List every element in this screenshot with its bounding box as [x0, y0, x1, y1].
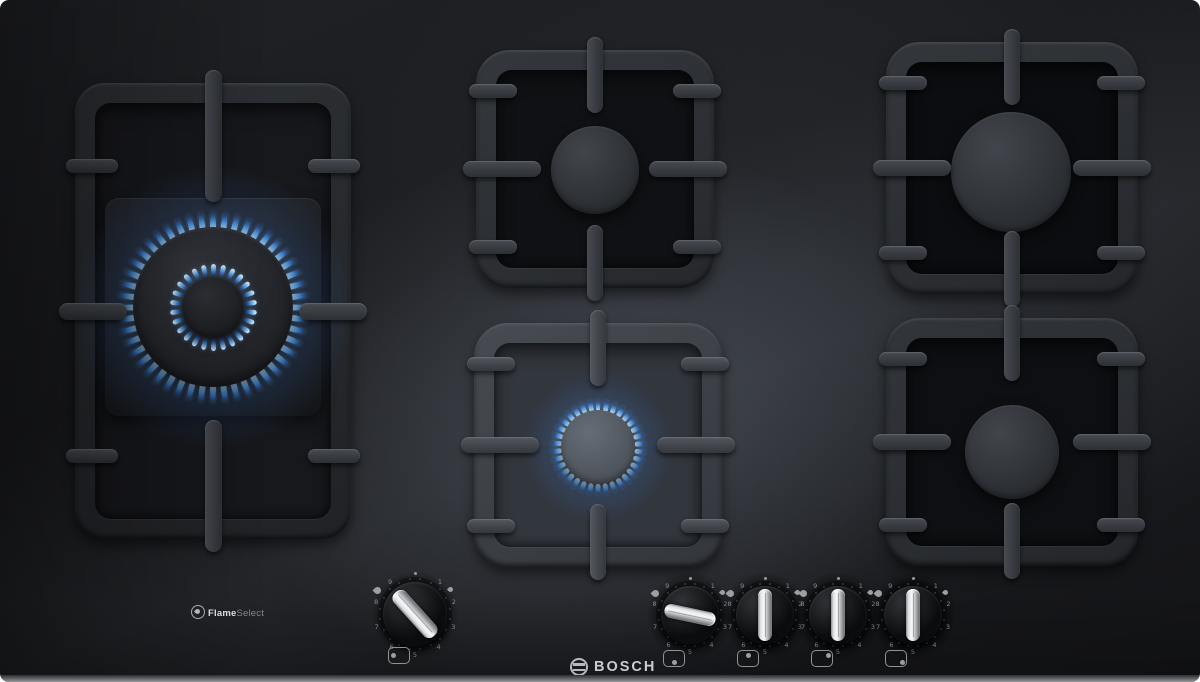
dial-number: 1	[856, 583, 866, 590]
support-foot	[681, 357, 729, 371]
dial-tick	[809, 600, 811, 602]
dial-tick	[851, 642, 853, 644]
dial-number: 4	[929, 642, 939, 649]
dial-tick	[398, 582, 400, 584]
dial-tick	[815, 636, 817, 638]
bosch-armature-icon	[570, 658, 588, 676]
dial-tick	[940, 600, 942, 602]
support-prong-top	[1004, 305, 1020, 381]
support-foot	[1097, 76, 1145, 90]
dial-number: 9	[385, 579, 395, 586]
burner-position-icon-left-center	[388, 647, 410, 664]
knob-handle	[831, 589, 845, 641]
dial-number: 7	[372, 624, 382, 631]
burner-position-icon-top-right	[811, 650, 833, 667]
dial-off-mark	[689, 577, 692, 580]
max-flame-icon	[652, 590, 659, 597]
dial-tick	[430, 582, 432, 584]
dial-tick	[711, 636, 713, 638]
dial-tick	[419, 578, 421, 580]
burner-cap-front-right	[965, 405, 1059, 499]
min-flame-icon	[448, 587, 453, 592]
glass-front-bevel	[0, 675, 1200, 682]
support-prong-right	[649, 161, 727, 177]
dial-tick	[742, 592, 744, 594]
dial-tick	[832, 583, 834, 585]
burner-position-icon-bottom-right	[885, 650, 907, 667]
dial-tick	[419, 648, 421, 650]
dial-number: 7	[725, 624, 735, 631]
dial-tick	[823, 586, 825, 588]
dial-number: 4	[854, 642, 864, 649]
dial-tick	[694, 583, 696, 585]
station-back-right	[886, 42, 1138, 294]
dial-tick	[926, 586, 928, 588]
dial-number: 8	[873, 601, 883, 608]
dial-tick	[832, 645, 834, 647]
dial-number: 1	[435, 579, 445, 586]
max-flame-icon	[875, 590, 882, 597]
dial-number: 6	[664, 642, 674, 649]
dial-tick	[917, 583, 919, 585]
support-prong-top	[590, 310, 606, 386]
dial-tick	[884, 600, 886, 602]
dial-tick	[917, 645, 919, 647]
dial-tick	[809, 628, 811, 630]
flameselect-light-text: Select	[236, 608, 264, 619]
dial-tick	[907, 583, 909, 585]
dial-tick	[851, 586, 853, 588]
dial-number: 7	[873, 624, 883, 631]
dial-off-mark	[912, 577, 915, 580]
dial-tick	[733, 609, 735, 611]
support-foot	[308, 159, 360, 173]
dial-tick	[842, 583, 844, 585]
dial-tick	[379, 608, 381, 610]
dial-tick	[658, 619, 660, 621]
dial-off-mark	[837, 577, 840, 580]
dial-tick	[778, 642, 780, 644]
dial-number: 8	[650, 601, 660, 608]
dial-number: 1	[708, 583, 718, 590]
dial-tick	[884, 628, 886, 630]
station-wok-left	[75, 83, 351, 539]
support-prong-bottom	[587, 225, 603, 301]
max-flame-icon	[374, 587, 381, 594]
product-photo-stage: FlameSelect BOSCH 1234567891234567891234…	[0, 0, 1200, 682]
dial-number: 9	[810, 583, 820, 590]
dial-tick	[711, 592, 713, 594]
dial-number: 4	[434, 644, 444, 651]
dial-tick	[409, 578, 411, 580]
gas-hob-glass-surface: FlameSelect BOSCH 1234567891234567891234…	[0, 0, 1200, 682]
dial-number: 6	[887, 642, 897, 649]
support-foot	[1097, 518, 1145, 532]
dial-tick	[703, 586, 705, 588]
dial-tick	[934, 636, 936, 638]
support-foot	[879, 518, 927, 532]
dial-tick	[943, 609, 945, 611]
dial-tick	[661, 600, 663, 602]
support-prong-bottom	[1004, 503, 1020, 579]
dial-number: 5	[833, 649, 843, 656]
min-flame-icon	[943, 590, 948, 595]
dial-tick	[675, 642, 677, 644]
burner-cap-wok	[182, 276, 244, 338]
support-foot	[879, 352, 927, 366]
dial-number: 4	[706, 642, 716, 649]
burner-cap-back-center	[551, 126, 639, 214]
flame-tongue	[211, 264, 216, 277]
dial-tick	[661, 628, 663, 630]
support-foot	[469, 240, 517, 254]
dial-tick	[389, 588, 391, 590]
flame-tongue	[596, 484, 601, 495]
flame-tongue	[634, 440, 645, 445]
dial-tick	[383, 629, 385, 631]
dial-tick	[823, 642, 825, 644]
knob-dial	[884, 586, 942, 644]
dial-number: 2	[449, 599, 459, 606]
left-wok-burner-knob[interactable]: 123456789	[367, 566, 463, 662]
dial-tick	[445, 597, 447, 599]
knob-handle	[663, 603, 717, 628]
dial-number: 2	[943, 601, 953, 608]
dial-tick	[786, 636, 788, 638]
dial-tick	[449, 618, 451, 620]
dial-tick	[881, 619, 883, 621]
dial-tick	[943, 619, 945, 621]
support-foot	[681, 519, 729, 533]
support-prong-bottom	[1004, 231, 1020, 307]
dial-off-mark	[414, 572, 417, 575]
knob-dial	[736, 586, 794, 644]
dial-tick	[658, 609, 660, 611]
dial-number: 1	[931, 583, 941, 590]
dial-tick	[742, 636, 744, 638]
knob-dial	[383, 582, 447, 646]
dial-tick	[694, 645, 696, 647]
dial-number: 3	[943, 624, 953, 631]
support-foot	[879, 76, 927, 90]
dial-tick	[806, 609, 808, 611]
dial-tick	[398, 644, 400, 646]
dial-tick	[859, 592, 861, 594]
knob-handle	[758, 589, 772, 641]
support-foot	[469, 84, 517, 98]
flame-tongue	[211, 338, 216, 351]
dial-tick	[736, 600, 738, 602]
dial-tick	[439, 638, 441, 640]
flameselect-badge: FlameSelect	[191, 603, 264, 621]
dial-tick	[759, 645, 761, 647]
dial-number: 9	[662, 583, 672, 590]
dial-number: 5	[760, 649, 770, 656]
dial-tick	[786, 592, 788, 594]
dial-tick	[898, 586, 900, 588]
support-prong-bottom	[205, 420, 222, 552]
dial-number: 9	[885, 583, 895, 590]
support-prong-right	[1073, 160, 1151, 176]
dial-number: 3	[448, 624, 458, 631]
dial-tick	[379, 618, 381, 620]
flame-circle-icon	[191, 605, 205, 619]
dial-tick	[430, 644, 432, 646]
knob-dial	[661, 586, 719, 644]
dial-tick	[389, 638, 391, 640]
max-flame-icon	[727, 590, 734, 597]
position-dot	[900, 660, 905, 665]
dial-number: 5	[685, 649, 695, 656]
dial-number: 4	[781, 642, 791, 649]
burner-position-icon-top-center	[737, 650, 759, 667]
dial-number: 9	[737, 583, 747, 590]
dial-tick	[759, 583, 761, 585]
knob-dial	[809, 586, 867, 644]
dial-number: 8	[371, 599, 381, 606]
support-foot	[673, 84, 721, 98]
dial-tick	[890, 592, 892, 594]
dial-number: 7	[798, 624, 808, 631]
support-prong-left	[873, 434, 951, 450]
support-prong-top	[587, 37, 603, 113]
burner-cap-back-right	[951, 112, 1071, 232]
dial-number: 7	[650, 624, 660, 631]
support-foot	[66, 449, 118, 463]
position-dot	[672, 660, 677, 665]
support-prong-left	[59, 303, 127, 320]
support-foot	[673, 240, 721, 254]
dial-tick	[750, 586, 752, 588]
support-foot	[308, 449, 360, 463]
dial-tick	[667, 592, 669, 594]
position-dot	[746, 653, 751, 658]
knob-handle	[390, 587, 441, 641]
dial-tick	[769, 583, 771, 585]
dial-number: 5	[908, 649, 918, 656]
dial-tick	[842, 645, 844, 647]
support-prong-right	[1073, 434, 1151, 450]
dial-tick	[898, 642, 900, 644]
dial-tick	[907, 645, 909, 647]
dial-tick	[684, 583, 686, 585]
support-foot	[879, 246, 927, 260]
dial-tick	[815, 592, 817, 594]
flameselect-bold-text: Flame	[208, 608, 236, 619]
dial-tick	[383, 597, 385, 599]
knob-handle	[906, 589, 920, 641]
station-front-center	[474, 323, 722, 567]
dial-tick	[736, 628, 738, 630]
dial-number: 8	[725, 601, 735, 608]
dial-tick	[806, 619, 808, 621]
station-back-center	[476, 50, 714, 288]
dial-tick	[667, 636, 669, 638]
station-front-right	[886, 318, 1138, 566]
dial-tick	[940, 628, 942, 630]
dial-tick	[890, 636, 892, 638]
front-right-burner-knob[interactable]: 123456789	[867, 569, 959, 661]
support-foot	[66, 159, 118, 173]
bosch-logo-text: BOSCH	[594, 659, 656, 675]
dial-tick	[926, 642, 928, 644]
burner-cap-front-center	[561, 410, 635, 484]
support-prong-right	[657, 437, 735, 453]
dial-tick	[778, 586, 780, 588]
support-prong-left	[461, 437, 539, 453]
dial-number: 6	[739, 642, 749, 649]
support-foot	[1097, 246, 1145, 260]
support-prong-left	[463, 161, 541, 177]
dial-tick	[733, 619, 735, 621]
support-foot	[1097, 352, 1145, 366]
max-flame-icon	[800, 590, 807, 597]
support-prong-left	[873, 160, 951, 176]
dial-number: 8	[798, 601, 808, 608]
dial-tick	[703, 642, 705, 644]
dial-tick	[769, 645, 771, 647]
support-prong-top	[1004, 29, 1020, 105]
support-foot	[467, 357, 515, 371]
dial-tick	[934, 592, 936, 594]
dial-tick	[675, 586, 677, 588]
dial-off-mark	[764, 577, 767, 580]
dial-tick	[439, 588, 441, 590]
dial-tick	[445, 629, 447, 631]
support-prong-bottom	[590, 504, 606, 580]
burner-position-icon-bottom-center	[663, 650, 685, 667]
dial-number: 6	[812, 642, 822, 649]
dial-tick	[881, 609, 883, 611]
support-prong-right	[299, 303, 367, 320]
flame-tongue	[596, 400, 601, 411]
position-dot	[826, 653, 831, 658]
support-prong-top	[205, 70, 222, 202]
support-foot	[467, 519, 515, 533]
position-dot	[391, 653, 396, 658]
dial-tick	[859, 636, 861, 638]
dial-tick	[684, 645, 686, 647]
dial-tick	[750, 642, 752, 644]
dial-tick	[449, 608, 451, 610]
dial-number: 5	[410, 652, 420, 659]
